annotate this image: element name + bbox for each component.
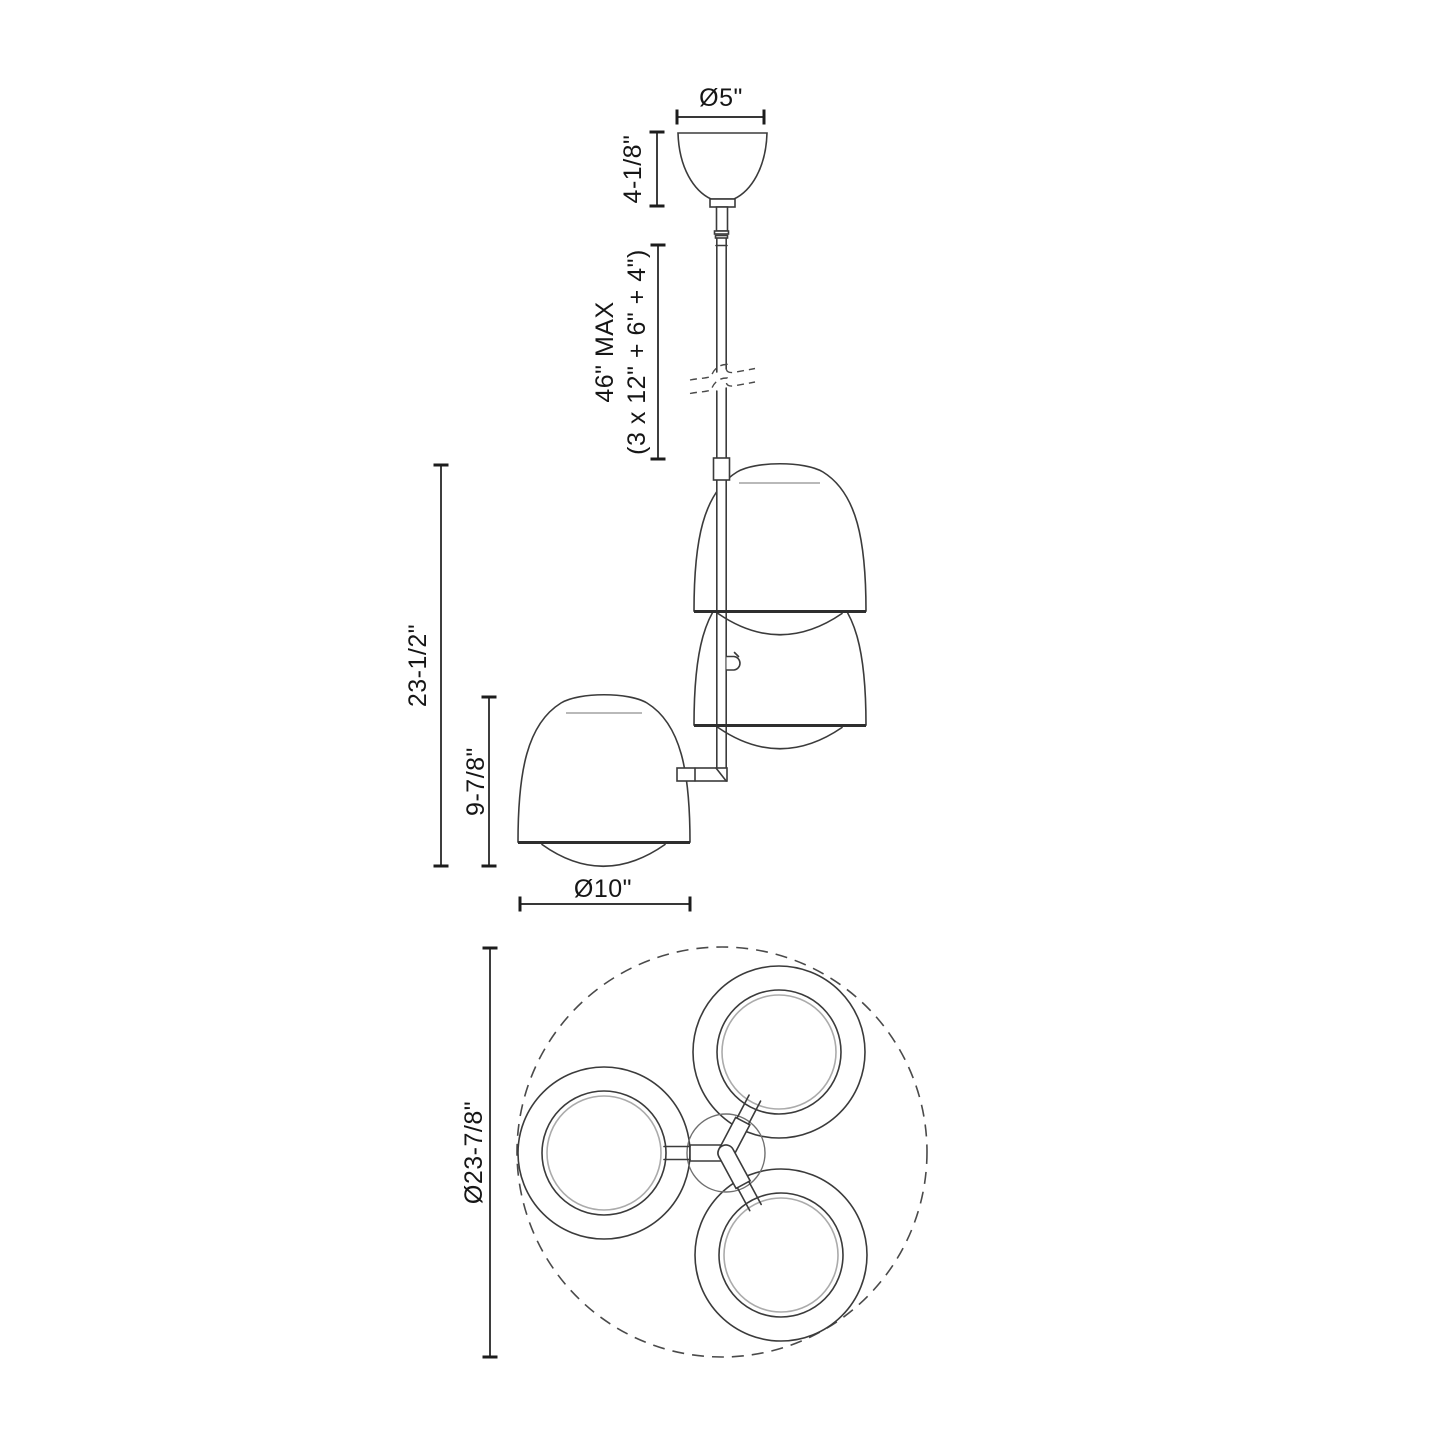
plan-shade-bottom-right-rim [719, 1193, 843, 1317]
shade-bottom [518, 695, 690, 867]
dimension-canopy-diameter: Ø5" [677, 84, 764, 125]
dimension-canopy-height: 4-1/8" [619, 132, 665, 206]
shade-middle-diffuser [718, 728, 842, 749]
body-height-label: 23-1/2" [404, 624, 432, 707]
dimension-overall-diameter: Ø23-7/8" [460, 948, 498, 1357]
rod-breakdown-label: (3 x 12" + 6" + 4") [623, 249, 651, 455]
stem-coupler-lower [716, 236, 728, 239]
plan-shade-left-rim [542, 1091, 666, 1215]
plan-shade-left [518, 1067, 690, 1239]
dimension-shade-height: 9-7/8" [462, 697, 497, 866]
stem-coupler-upper [715, 231, 729, 234]
shade-middle-socket-knob [727, 657, 740, 671]
shade-diameter-label: Ø10" [574, 875, 632, 903]
plan-view: Ø23-7/8" [460, 947, 927, 1357]
support-arm-tube [677, 768, 727, 781]
shade-bottom-diffuser [542, 845, 665, 867]
dimension-body-height: 23-1/2" [404, 465, 449, 866]
rod-max-length-label: 46" MAX [591, 301, 619, 402]
canopy-height-label: 4-1/8" [619, 135, 647, 204]
fixture-spec-drawing: Ø5" 4-1/8" 46" MAX (3 x 12" + 6" + 4") 2… [0, 0, 1445, 1445]
plan-shade-top-right-rim [717, 990, 841, 1114]
elevation-view: Ø5" 4-1/8" 46" MAX (3 x 12" + 6" + 4") 2… [404, 84, 866, 912]
dimension-shade-diameter: Ø10" [520, 875, 690, 912]
plan-shade-bottom-right [695, 1169, 867, 1341]
rod-body [716, 237, 727, 768]
pendant-dimension-diagram: Ø5" 4-1/8" 46" MAX (3 x 12" + 6" + 4") 2… [0, 0, 1445, 1445]
dimension-rod-length: 46" MAX (3 x 12" + 6" + 4") [591, 245, 666, 459]
canopy-collar [710, 199, 735, 207]
overall-diameter-label: Ø23-7/8" [460, 1101, 488, 1204]
canopy-stem [717, 207, 728, 231]
support-arm [677, 768, 727, 781]
canopy-bowl [678, 133, 767, 199]
plan-shade-top-right [693, 966, 865, 1138]
shade-bottom-dome [518, 695, 690, 842]
plan-arm-bottom-right-tube [715, 1142, 750, 1188]
canopy-diameter-label: Ø5" [699, 84, 743, 112]
shade-height-label: 9-7/8" [462, 747, 490, 816]
rod-collar [714, 458, 730, 480]
